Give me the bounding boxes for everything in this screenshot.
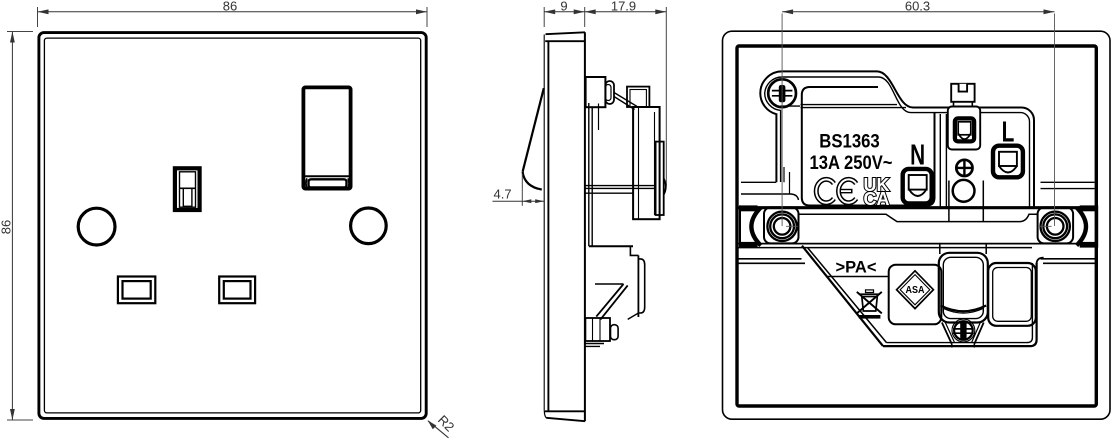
svg-text:17.9: 17.9 bbox=[611, 0, 636, 14]
svg-text:60.3: 60.3 bbox=[905, 0, 930, 13]
svg-text:BS1363: BS1363 bbox=[819, 132, 880, 153]
svg-text:R2: R2 bbox=[435, 412, 457, 434]
svg-text:86: 86 bbox=[223, 0, 237, 14]
svg-text:N: N bbox=[910, 139, 925, 171]
svg-text:4.7: 4.7 bbox=[494, 187, 512, 202]
svg-text:>PA<: >PA< bbox=[836, 258, 877, 276]
svg-text:9: 9 bbox=[560, 0, 567, 14]
svg-text:ASA: ASA bbox=[906, 284, 925, 296]
svg-text:86: 86 bbox=[0, 220, 13, 234]
svg-text:CA: CA bbox=[864, 189, 890, 209]
svg-text:13A 250V~: 13A 250V~ bbox=[810, 153, 893, 174]
